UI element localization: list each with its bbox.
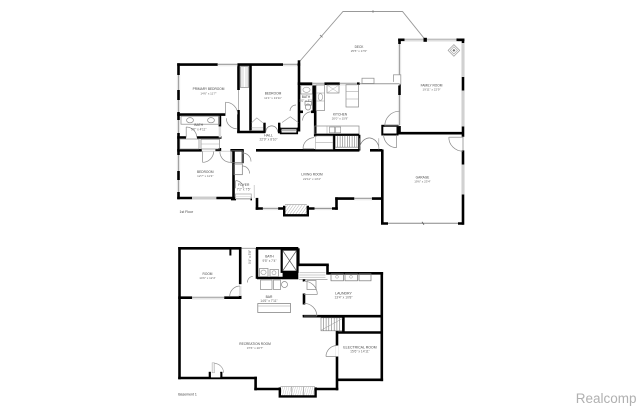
svg-text:13'4" x 10'8": 13'4" x 10'8" xyxy=(334,296,353,300)
svg-text:9'4" x 3'8": 9'4" x 3'8" xyxy=(248,250,252,264)
svg-text:12'7" x 11'3": 12'7" x 11'3" xyxy=(197,174,213,178)
svg-text:Basement 1: Basement 1 xyxy=(178,392,197,396)
svg-text:19'6" x 23'4": 19'6" x 23'4" xyxy=(414,179,430,183)
svg-text:5'0" x 8'2": 5'0" x 8'2" xyxy=(299,99,313,103)
svg-text:9'0" x 4'11": 9'0" x 4'11" xyxy=(191,127,206,131)
svg-text:Realcomp: Realcomp xyxy=(576,391,637,406)
svg-text:11'1" x 13'11": 11'1" x 13'11" xyxy=(264,96,282,100)
svg-text:22'9" x 8'10": 22'9" x 8'10" xyxy=(259,137,278,141)
svg-text:9'5" x 7'4": 9'5" x 7'4" xyxy=(263,259,277,263)
svg-text:37'6" x 20'7": 37'6" x 20'7" xyxy=(247,346,263,350)
svg-text:14'6" x 12'4": 14'6" x 12'4" xyxy=(199,276,215,280)
svg-text:22'11" x 13'4": 22'11" x 13'4" xyxy=(303,177,321,181)
svg-text:25'5" x 17'0": 25'5" x 17'0" xyxy=(351,49,367,53)
svg-text:19'11" x 22'9": 19'11" x 22'9" xyxy=(423,87,441,91)
svg-text:20'0" x 15'9": 20'0" x 15'9" xyxy=(332,116,348,120)
svg-text:1st Floor: 1st Floor xyxy=(180,210,194,214)
svg-text:14'6" x 11'7": 14'6" x 11'7" xyxy=(200,91,216,95)
svg-text:15'6" x 14'11": 15'6" x 14'11" xyxy=(350,349,370,353)
svg-text:7'2" x 7'5": 7'2" x 7'5" xyxy=(237,187,251,191)
svg-text:14'6" x 7'11": 14'6" x 7'11" xyxy=(260,299,277,303)
